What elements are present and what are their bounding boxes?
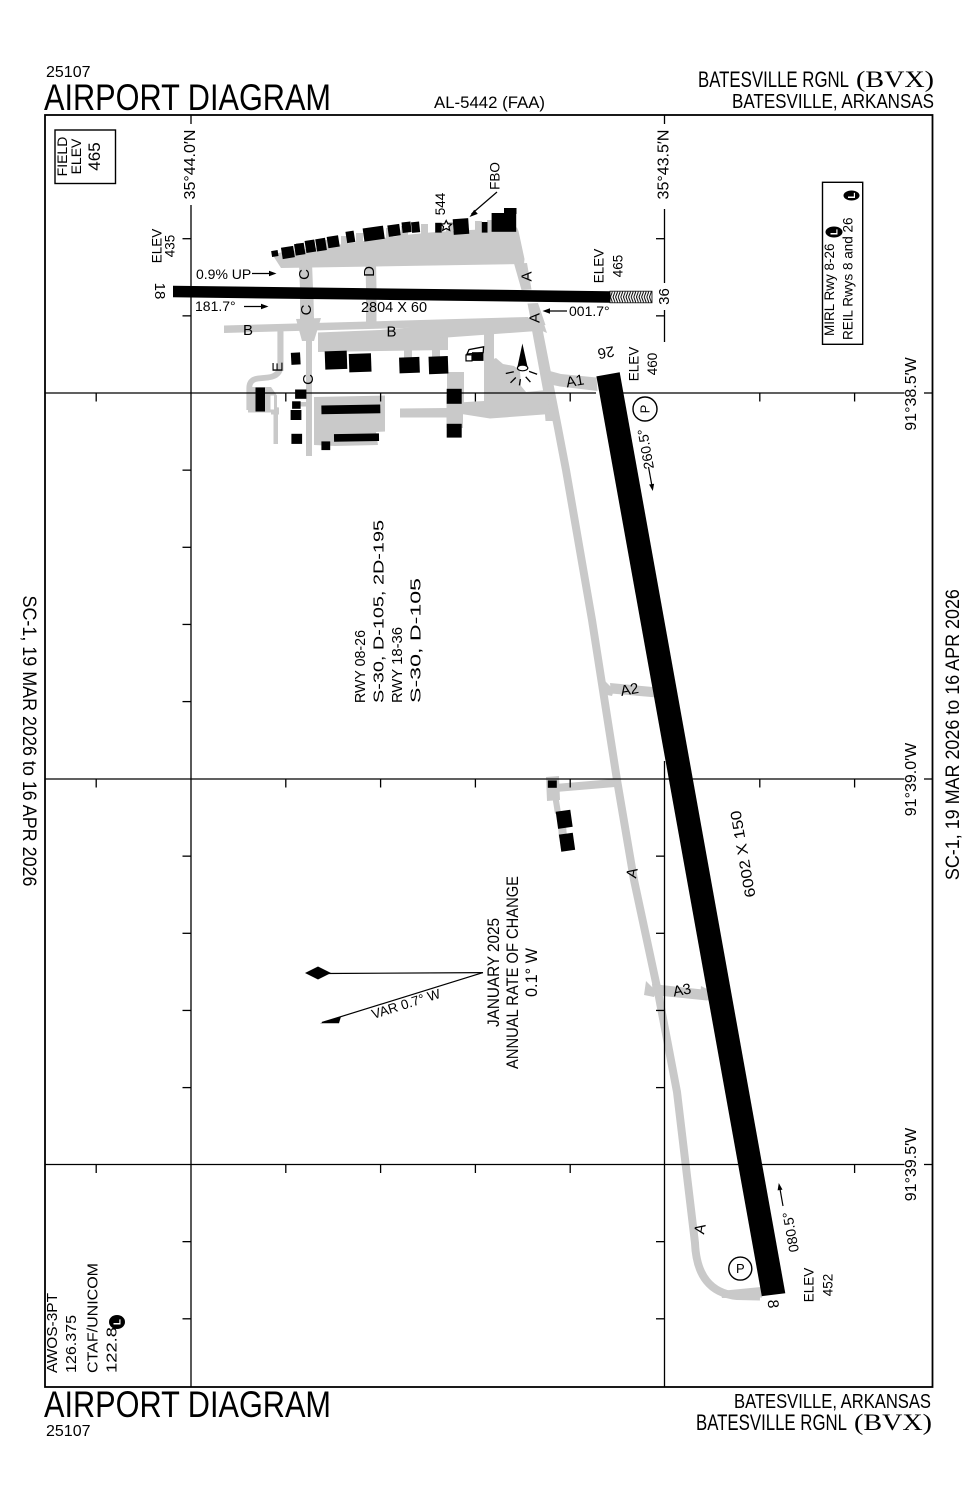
svg-text:A: A [691,1223,709,1236]
svg-text:122.8: 122.8 [104,1327,121,1373]
svg-text:C: C [296,269,313,280]
svg-text:P: P [638,405,653,414]
svg-text:B: B [386,324,396,341]
svg-text:A: A [527,313,544,323]
svg-text:91°39.0′W: 91°39.0′W [903,742,920,816]
svg-text:AL-5442 (FAA): AL-5442 (FAA) [434,93,545,112]
svg-text:REIL Rwys 8 and 26: REIL Rwys 8 and 26 [841,217,856,340]
svg-text:A2: A2 [619,680,640,700]
svg-text:S-30, D-105, 2D-195: S-30, D-105, 2D-195 [371,520,388,703]
svg-text:0.9% UP: 0.9% UP [196,266,251,282]
svg-text:2804 X 60: 2804 X 60 [361,300,427,316]
svg-text:080.5°: 080.5° [779,1211,802,1254]
svg-text:465: 465 [611,255,626,278]
svg-text:(BVX): (BVX) [856,67,934,92]
svg-text:AWOS-3PT: AWOS-3PT [44,1293,61,1373]
svg-text:L: L [830,229,841,235]
svg-text:8: 8 [764,1299,782,1309]
svg-text:126.375: 126.375 [63,1315,80,1373]
svg-text:18: 18 [151,283,168,300]
svg-text:6002 X 150: 6002 X 150 [727,809,759,899]
svg-text:B: B [243,322,253,339]
svg-text:VAR 0.7° W: VAR 0.7° W [370,986,443,1022]
svg-text:260.5°: 260.5° [634,428,657,471]
svg-text:435: 435 [163,235,178,258]
svg-text:P: P [736,1261,745,1276]
svg-text:C: C [298,304,315,315]
svg-text:ELEV: ELEV [592,249,607,284]
svg-text:91°39.5′W: 91°39.5′W [903,1127,920,1201]
svg-text:C: C [300,374,317,385]
svg-text:544: 544 [433,192,448,215]
svg-text:A1: A1 [565,372,586,392]
svg-text:460: 460 [645,353,660,376]
svg-text:L: L [847,192,858,198]
svg-text:SC-1, 19 MAR 2026 to 16 APR: SC-1, 19 MAR 2026 to 16 APR 2026 [18,596,39,887]
svg-text:0.1° W: 0.1° W [523,948,541,997]
svg-text:26: 26 [596,342,615,362]
svg-text:MIRL Rwy 8-26: MIRL Rwy 8-26 [822,243,837,336]
svg-text:35°44.0′N: 35°44.0′N [182,130,199,200]
svg-text:36: 36 [656,288,673,305]
svg-text:AIRPORT DIAGRAM: AIRPORT DIAGRAM [44,1384,331,1425]
svg-text:A3: A3 [672,981,693,1001]
svg-text:ELEV: ELEV [627,347,642,382]
svg-text:181.7°: 181.7° [195,298,236,314]
svg-text:91°38.5′W: 91°38.5′W [903,356,920,430]
svg-text:FBO: FBO [488,162,503,190]
svg-text:BATESVILLE RGNL: BATESVILLE RGNL [698,67,849,92]
svg-text:25107: 25107 [46,1423,91,1440]
svg-text:465: 465 [85,142,104,170]
svg-text:RWY 18-36: RWY 18-36 [389,627,406,703]
svg-text:BATESVILLE RGNL: BATESVILLE RGNL [696,1410,847,1435]
svg-text:A: A [519,271,536,281]
svg-text:E: E [270,362,287,372]
svg-text:D: D [361,266,378,277]
svg-text:(BVX): (BVX) [854,1410,932,1435]
svg-text:BATESVILLE, ARKANSAS: BATESVILLE, ARKANSAS [732,91,934,113]
svg-text:452: 452 [821,1274,836,1297]
svg-text:ELEV: ELEV [802,1268,817,1303]
svg-text:JANUARY 2025: JANUARY 2025 [485,918,503,1027]
svg-text:L: L [113,1319,124,1325]
svg-text:A: A [623,867,641,880]
svg-text:CTAF/UNICOM: CTAF/UNICOM [85,1263,102,1373]
svg-text:AIRPORT DIAGRAM: AIRPORT DIAGRAM [44,77,331,118]
svg-text:S-30, D-105: S-30, D-105 [408,578,425,703]
svg-text:ELEV: ELEV [68,138,84,174]
svg-text:35°43.5′N: 35°43.5′N [656,130,673,200]
svg-text:001.7°: 001.7° [569,303,610,319]
svg-text:ANNUAL RATE OF CHANGE: ANNUAL RATE OF CHANGE [504,876,522,1069]
svg-text:SC-1, 19 MAR 2026 to 16 APR: SC-1, 19 MAR 2026 to 16 APR 2026 [943,589,964,880]
svg-text:RWY 08-26: RWY 08-26 [352,630,369,703]
